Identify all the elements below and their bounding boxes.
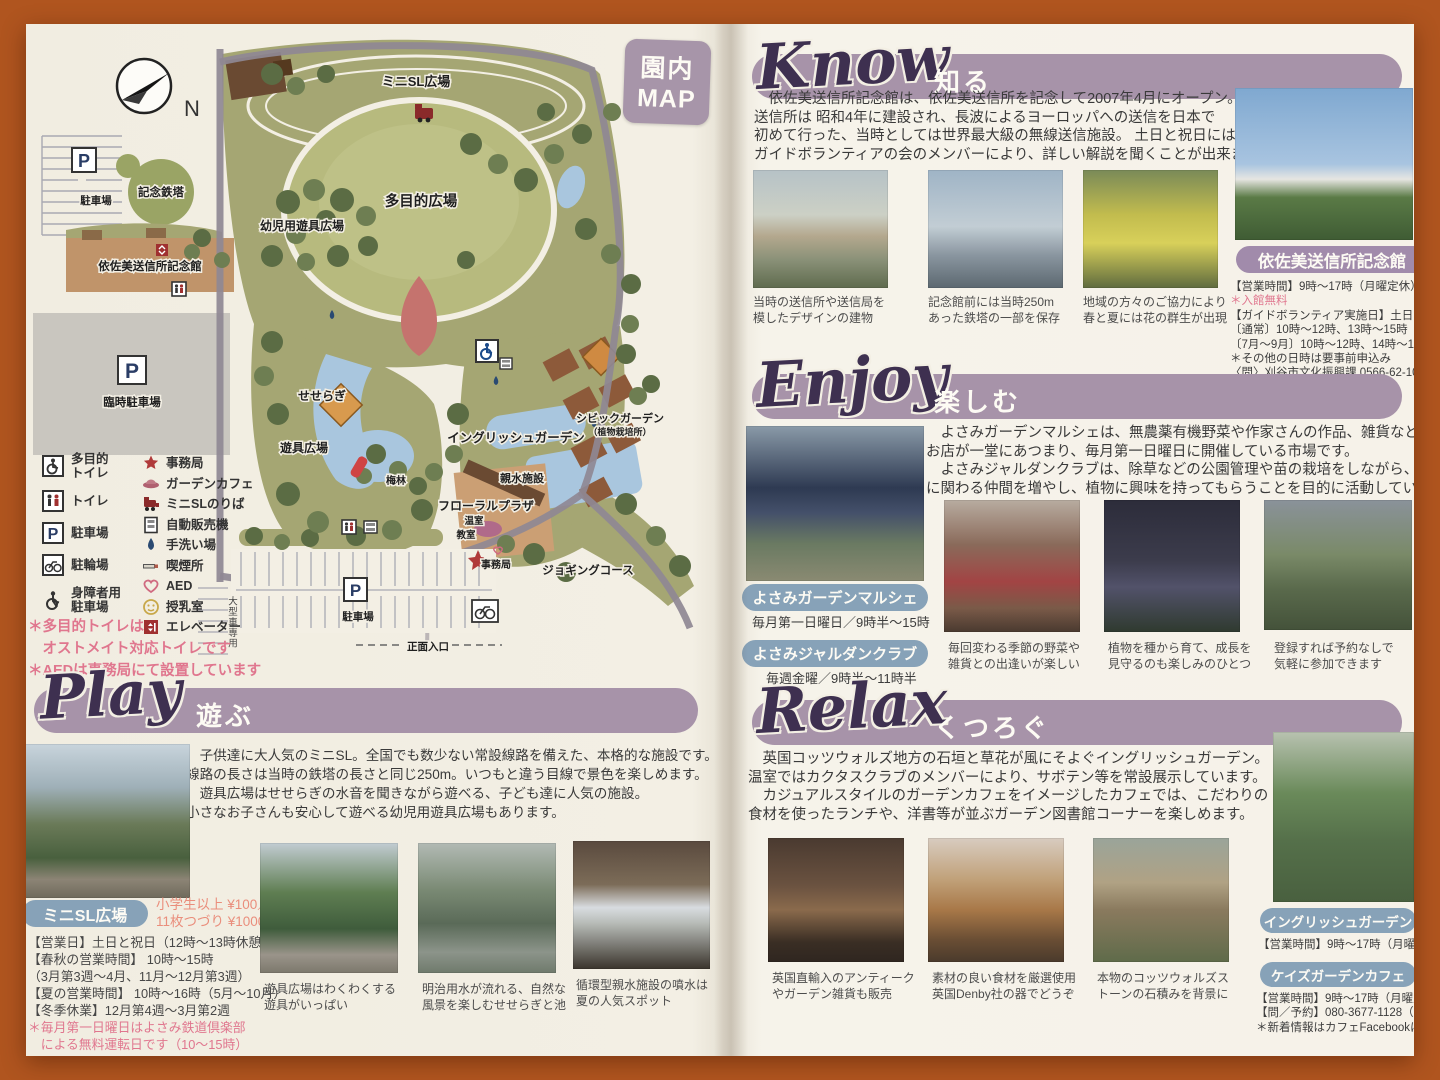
svg-text:P: P [125, 360, 139, 383]
svg-text:親水施設: 親水施設 [500, 471, 545, 485]
know-caption-1: 当時の送信所や送信局を 模したデザインの建物 [753, 294, 911, 326]
marche-schedule: 毎月第一日曜日／9時半～15時 [752, 616, 930, 630]
page-fold [714, 24, 748, 1056]
svg-text:記念鉄塔: 記念鉄塔 [138, 185, 184, 199]
svg-text:P: P [350, 581, 361, 600]
photo-steel-tower [928, 170, 1063, 288]
svg-text:P: P [78, 151, 90, 171]
legend-item-parking: P 駐車場 [42, 522, 142, 544]
mini-sl-plaza-badge: ミニSL広場 [26, 900, 148, 927]
legend-item-toilet: トイレ [42, 490, 142, 512]
svg-text:P: P [48, 526, 59, 543]
svg-text:駐車場: 駐車場 [80, 194, 112, 207]
know-paragraph: 依佐美送信所記念館は、依佐美送信所を記念して2007年4月にオープン。送信所は … [754, 90, 1273, 164]
photo-seedlings [1104, 500, 1240, 632]
memorial-hall-info: 【営業時間】9時～17時（月曜定休） ＊入館無料 【ガイドボランティア実施日】土… [1230, 280, 1414, 381]
multipurpose-toilet-icon [42, 455, 64, 477]
park-map-badge: 園内 MAP [623, 39, 712, 126]
relax-caption-3: 本物のコッツウォルズス トーンの石積みを背景に [1097, 970, 1255, 1002]
svg-text:多目的広場: 多目的広場 [385, 192, 458, 210]
photo-flower-field [1083, 170, 1218, 288]
legend-item-hand-wash: 手洗い場 [142, 536, 266, 554]
svg-text:ジョギングコース: ジョギングコース [542, 563, 633, 577]
photo-mini-sl-train [26, 744, 190, 898]
photo-cotswold-wall [1093, 838, 1229, 962]
legend-item-multipurpose-toilet: 多目的 トイレ [42, 452, 142, 480]
photo-marche-stall [944, 500, 1080, 632]
relax-paragraph: 英国コッツウォルズ地方の石垣と草花が風にそよぐイングリッシュガーデン。温室ではカ… [748, 750, 1269, 824]
legend-item-bicycle-parking: 駐輪場 [42, 554, 142, 576]
legend-left-column: 多目的 トイレ トイレ P 駐車場 駐輪場 身障者用 駐車場 [42, 452, 142, 620]
mini-sl-schedule: 【営業日】土日と祝日（12時～13時休憩） 【春秋の営業時間】 10時～15時 … [28, 934, 286, 1053]
heart-icon [142, 577, 160, 595]
cigarette-icon [142, 557, 160, 575]
enjoy-caption-1: 毎回変わる季節の野菜や 雑貨との出逢いが楽しい [948, 640, 1108, 672]
park-map-badge-top: 園内 [624, 48, 711, 87]
legend-item-garden-cafe: ガーデンカフェ [142, 475, 266, 493]
enjoy-subtitle: 楽しむ [934, 382, 1021, 419]
legend-item-disabled-parking: 身障者用 駐車場 [42, 586, 142, 614]
svg-text:依佐美送信所記念館: 依佐美送信所記念館 [98, 259, 202, 273]
svg-text:ミニSL広場: ミニSL広場 [382, 74, 451, 89]
vending-machine-icon [142, 516, 160, 534]
svg-text:フローラルプラザ: フローラルプラザ [438, 498, 534, 513]
play-title: Play [38, 656, 183, 733]
brochure-spread: P P P N ミニSL広場 多目的広場 [26, 24, 1414, 1056]
svg-text:駐車場: 駐車場 [342, 610, 374, 623]
photo-pergola-garden [1273, 732, 1414, 902]
legend-right-column: 事務局 ガーデンカフェ ミニSLのりば 自動販売機 手洗い場 [142, 454, 266, 639]
svg-text:幼児用遊具広場: 幼児用遊具広場 [260, 218, 344, 233]
star-icon [142, 454, 160, 472]
play-caption-2: 明治用水が流れる、自然な 風景を楽しむせせらぎと池 [422, 981, 580, 1013]
svg-text:正面入口: 正面入口 [407, 641, 449, 653]
photo-marche-tents [746, 426, 924, 581]
play-subtitle: 遊ぶ [196, 696, 254, 733]
photo-transmission-station [1235, 88, 1413, 240]
svg-text:梅林: 梅林 [386, 474, 407, 487]
photo-garden-club [1264, 500, 1412, 630]
enjoy-title: Enjoy [754, 339, 950, 422]
compass-icon [117, 59, 171, 113]
svg-text:せせらぎ: せせらぎ [298, 388, 346, 403]
toilet-icon [42, 490, 64, 512]
svg-text:イングリッシュガーデン: イングリッシュガーデン [447, 430, 585, 445]
photo-antique-shop [768, 838, 904, 962]
marche-badge: よさみガーデンマルシェ [742, 584, 928, 611]
legend-item-office: 事務局 [142, 454, 266, 472]
relax-caption-1: 英国直輸入のアンティーク やガーデン雑貨も販売 [772, 970, 932, 1002]
svg-text:教室: 教室 [455, 529, 476, 541]
know-caption-2: 記念館前には当時250m あった鉄塔の一部を保存 [928, 294, 1086, 326]
svg-text:遊具広場: 遊具広場 [280, 440, 328, 455]
cafe-info: 【営業時間】9時～17時（月曜定休） 【問／予約】080-3677-1128（直… [1256, 992, 1414, 1035]
train-icon [142, 495, 160, 513]
enjoy-caption-2: 植物を種から育て、成長を 見守るのも楽しみのひとつ [1108, 640, 1270, 672]
svg-text:（植物栽培所）: （植物栽培所） [588, 426, 651, 437]
svg-text:シビックガーデン: シビックガーデン [576, 411, 664, 425]
nursing-room-icon [142, 598, 160, 616]
cafe-hat-icon [142, 475, 160, 493]
enjoy-caption-3: 登録すれば予約なしで 気軽に参加できます [1274, 640, 1414, 672]
cafe-badge: ケイズガーデンカフェ [1260, 962, 1414, 987]
photo-memorial-building [753, 170, 888, 288]
memorial-hall-badge: 依佐美送信所記念館 [1236, 246, 1414, 273]
english-garden-badge: イングリッシュガーデン [1260, 908, 1414, 933]
play-caption-1: 遊具広場はわくわくする 遊具がいっぱい [264, 981, 416, 1013]
disabled-parking-icon [42, 589, 64, 611]
photo-scones [928, 838, 1064, 962]
enjoy-paragraph: よさみガーデンマルシェは、無農薬有機野菜や作家さんの作品、雑貨などのお店が一堂に… [926, 424, 1414, 498]
svg-text:臨時駐車場: 臨時駐車場 [103, 395, 161, 409]
english-garden-hours: 【営業時間】9時～17時（月曜定休） [1258, 938, 1414, 952]
play-caption-3: 循環型親水施設の噴水は 夏の人気スポット [576, 977, 734, 1009]
legend-item-smoking: 喫煙所 [142, 557, 266, 575]
parking-icon: P [42, 522, 64, 544]
play-paragraph: 子供達に大人気のミニSL。全国でも数少ない常設線路を備えた、本格的な施設です。線… [186, 746, 718, 822]
water-drop-icon [142, 536, 160, 554]
relax-subtitle: くつろぐ [934, 708, 1050, 745]
photo-playground [260, 843, 398, 973]
photo-fountain [573, 841, 710, 969]
photo-seseragi-pond [418, 843, 556, 973]
svg-text:温室: 温室 [464, 515, 484, 527]
relax-title: Relax [754, 665, 949, 748]
relax-caption-2: 素材の良い食材を厳選使用 英国Denby社の器でどうぞ [932, 970, 1096, 1002]
park-map-badge-bottom: MAP [623, 83, 710, 115]
bicycle-icon [42, 554, 64, 576]
know-caption-3: 地域の方々のご協力により 春と夏には花の群生が出現 [1083, 294, 1245, 326]
legend-item-vending: 自動販売機 [142, 516, 266, 534]
svg-text:事務局: 事務局 [481, 558, 511, 571]
legend-item-aed: AED [142, 577, 266, 595]
legend-item-mini-sl-stop: ミニSLのりば [142, 495, 266, 513]
legend-item-nursing: 授乳室 [142, 598, 266, 616]
compass-north-label: N [184, 96, 200, 121]
jardin-badge: よさみジャルダンクラブ [742, 640, 928, 667]
